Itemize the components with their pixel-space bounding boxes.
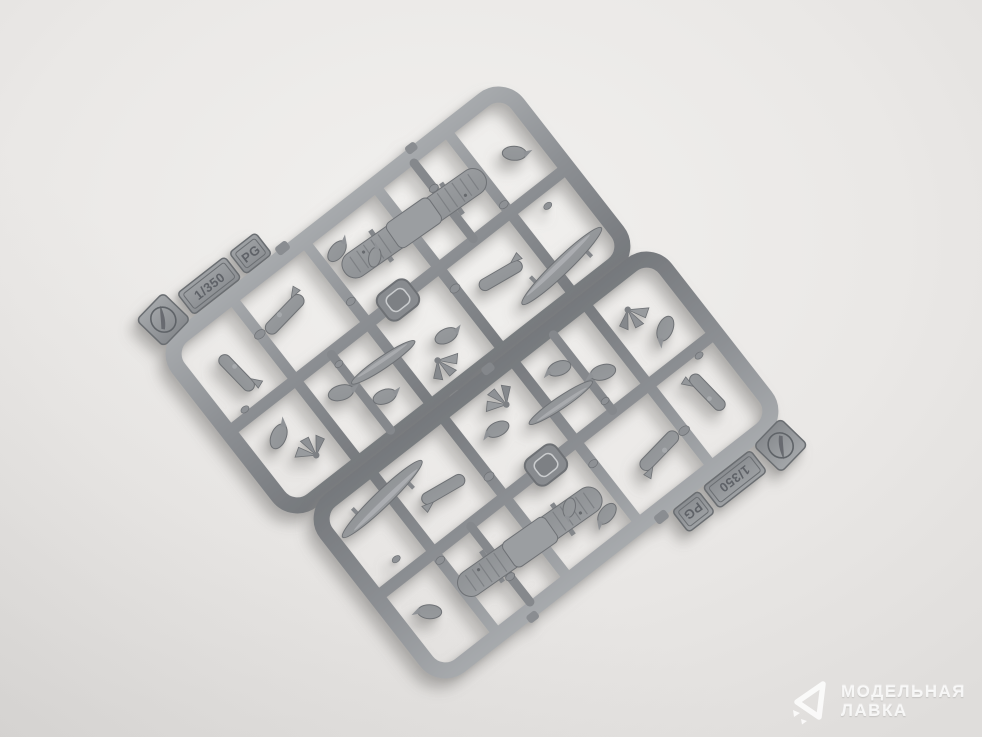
- paper-plane-logo-icon: [786, 677, 832, 725]
- product-photo-scene: 1/350 PG: [0, 0, 982, 737]
- watermark-line1: МОДЕЛЬНАЯ: [841, 682, 966, 701]
- watermark-line2: ЛАВКА: [841, 701, 966, 720]
- watermark: МОДЕЛЬНАЯ ЛАВКА: [786, 677, 966, 725]
- watermark-text: МОДЕЛЬНАЯ ЛАВКА: [841, 682, 966, 720]
- sprue-photo: 1/350 PG: [0, 0, 982, 737]
